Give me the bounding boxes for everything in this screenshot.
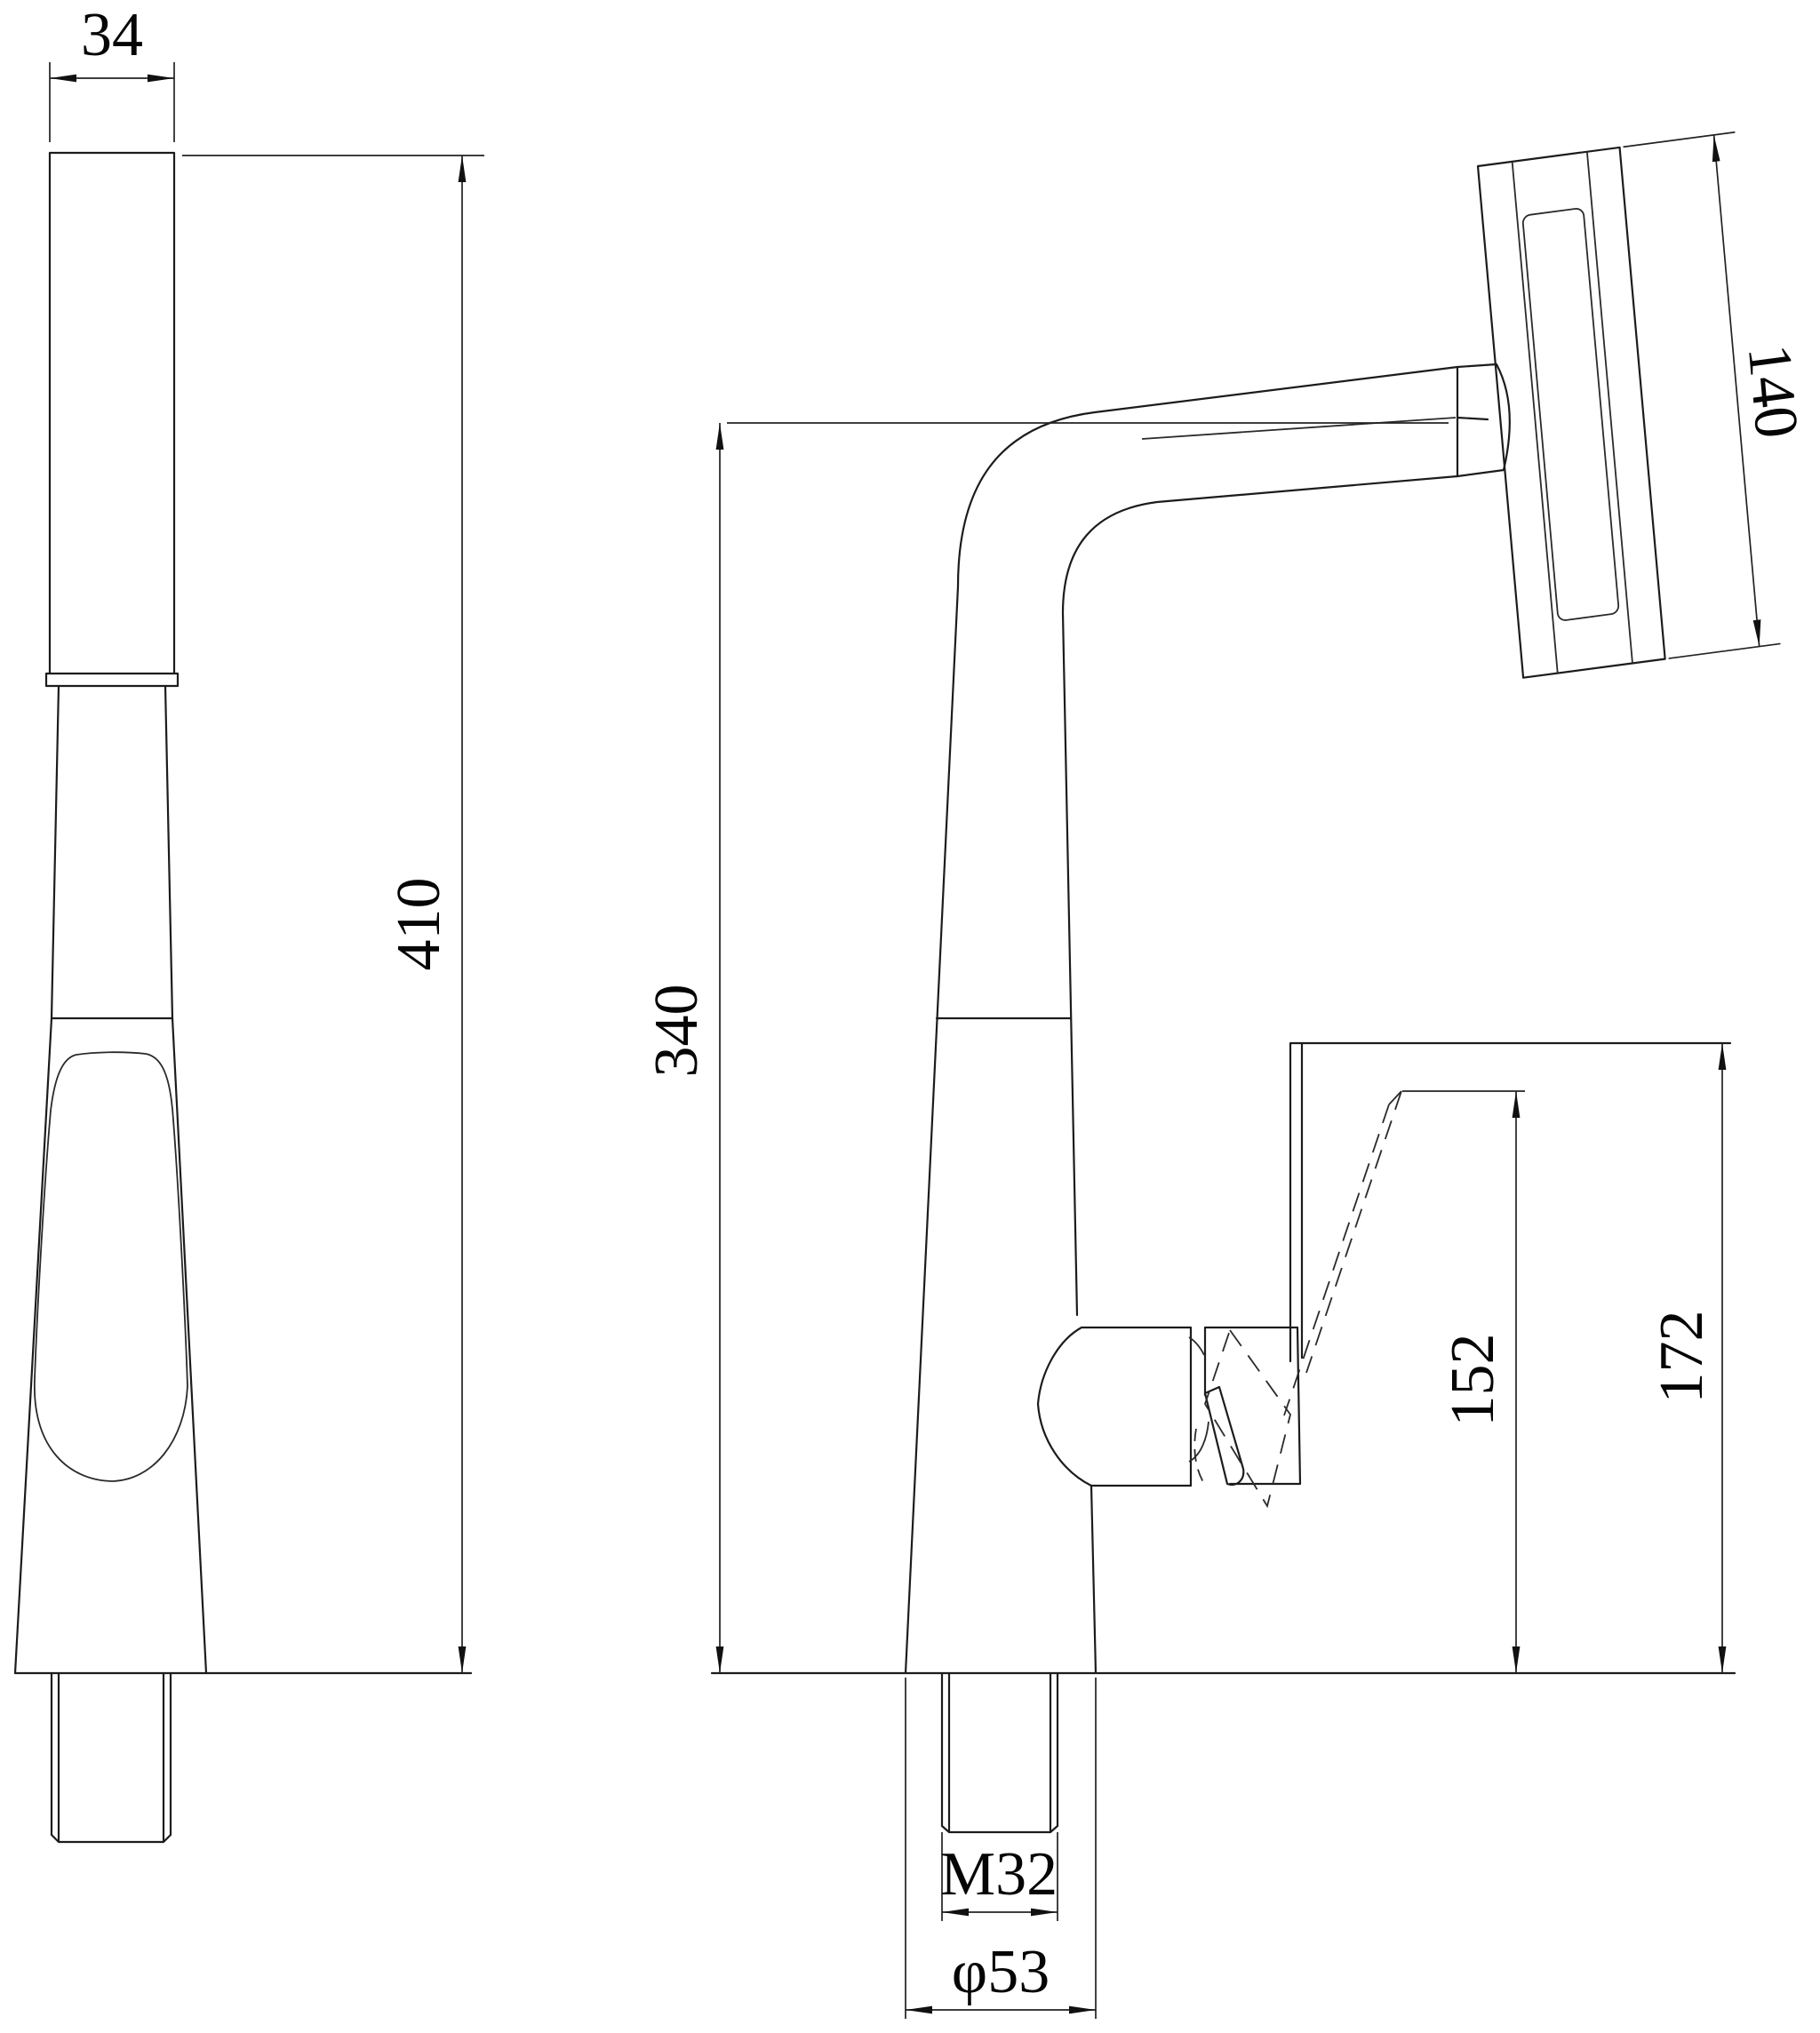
valve-dome-housing bbox=[1038, 1327, 1191, 1486]
dim-140-ext-bottom bbox=[1669, 643, 1781, 658]
handle-base-dashed bbox=[1205, 1330, 1290, 1506]
dim-410-label: 410 bbox=[385, 878, 453, 971]
side-view: 140 bbox=[906, 126, 1820, 1832]
column-lower-right-edge bbox=[1091, 1486, 1096, 1673]
handle-hidden-arc bbox=[1194, 1429, 1203, 1482]
dim-34-label: 34 bbox=[81, 1, 143, 69]
dim-phi53-label: φ53 bbox=[952, 1938, 1050, 2006]
spout-inner-contour bbox=[1063, 476, 1457, 1315]
spray-face-plate bbox=[1522, 208, 1619, 621]
spray-head-band-line2 bbox=[1587, 152, 1632, 664]
lever-swing-arc bbox=[1189, 1422, 1209, 1462]
dim-140: 140 bbox=[1624, 126, 1820, 659]
dim-172: 172 bbox=[1648, 1043, 1722, 1673]
body-flare bbox=[15, 1018, 206, 1673]
dim-m32-label: M32 bbox=[940, 1840, 1058, 1909]
valve-cartridge-block bbox=[1205, 1327, 1300, 1484]
spray-head-band-line1 bbox=[1513, 162, 1558, 674]
dim-m32: M32 bbox=[940, 1832, 1058, 1921]
technical-drawing-sheet: 140 34 410 bbox=[0, 0, 1820, 2033]
dim-340: 340 bbox=[643, 423, 1449, 1673]
dim-410: 410 bbox=[182, 155, 484, 1673]
front-view bbox=[15, 153, 206, 1842]
dim-140-ext-top bbox=[1624, 132, 1736, 147]
dim-34: 34 bbox=[50, 1, 174, 142]
dim-172-label: 172 bbox=[1648, 1311, 1716, 1404]
front-mount-stub bbox=[52, 1673, 171, 1842]
arm-parting-line bbox=[1142, 418, 1456, 439]
dim-340-label: 340 bbox=[643, 985, 711, 1078]
dim-140-label: 140 bbox=[1735, 340, 1811, 442]
dim-152-label: 152 bbox=[1439, 1334, 1507, 1427]
spray-head-outline bbox=[1478, 147, 1665, 678]
wand-cap-band bbox=[46, 674, 178, 686]
neck-taper bbox=[52, 686, 172, 1018]
spray-head: 140 bbox=[1478, 126, 1820, 678]
wand-outline bbox=[50, 153, 174, 674]
faucet-dimension-drawing: 140 34 410 bbox=[0, 0, 1820, 2033]
side-mount-shank bbox=[942, 1673, 1058, 1832]
front-recess-outline bbox=[35, 1052, 188, 1481]
wand-connector bbox=[1457, 364, 1510, 476]
spout-outer-contour bbox=[906, 367, 1457, 1673]
dim-152: 152 bbox=[1402, 1091, 1525, 1673]
